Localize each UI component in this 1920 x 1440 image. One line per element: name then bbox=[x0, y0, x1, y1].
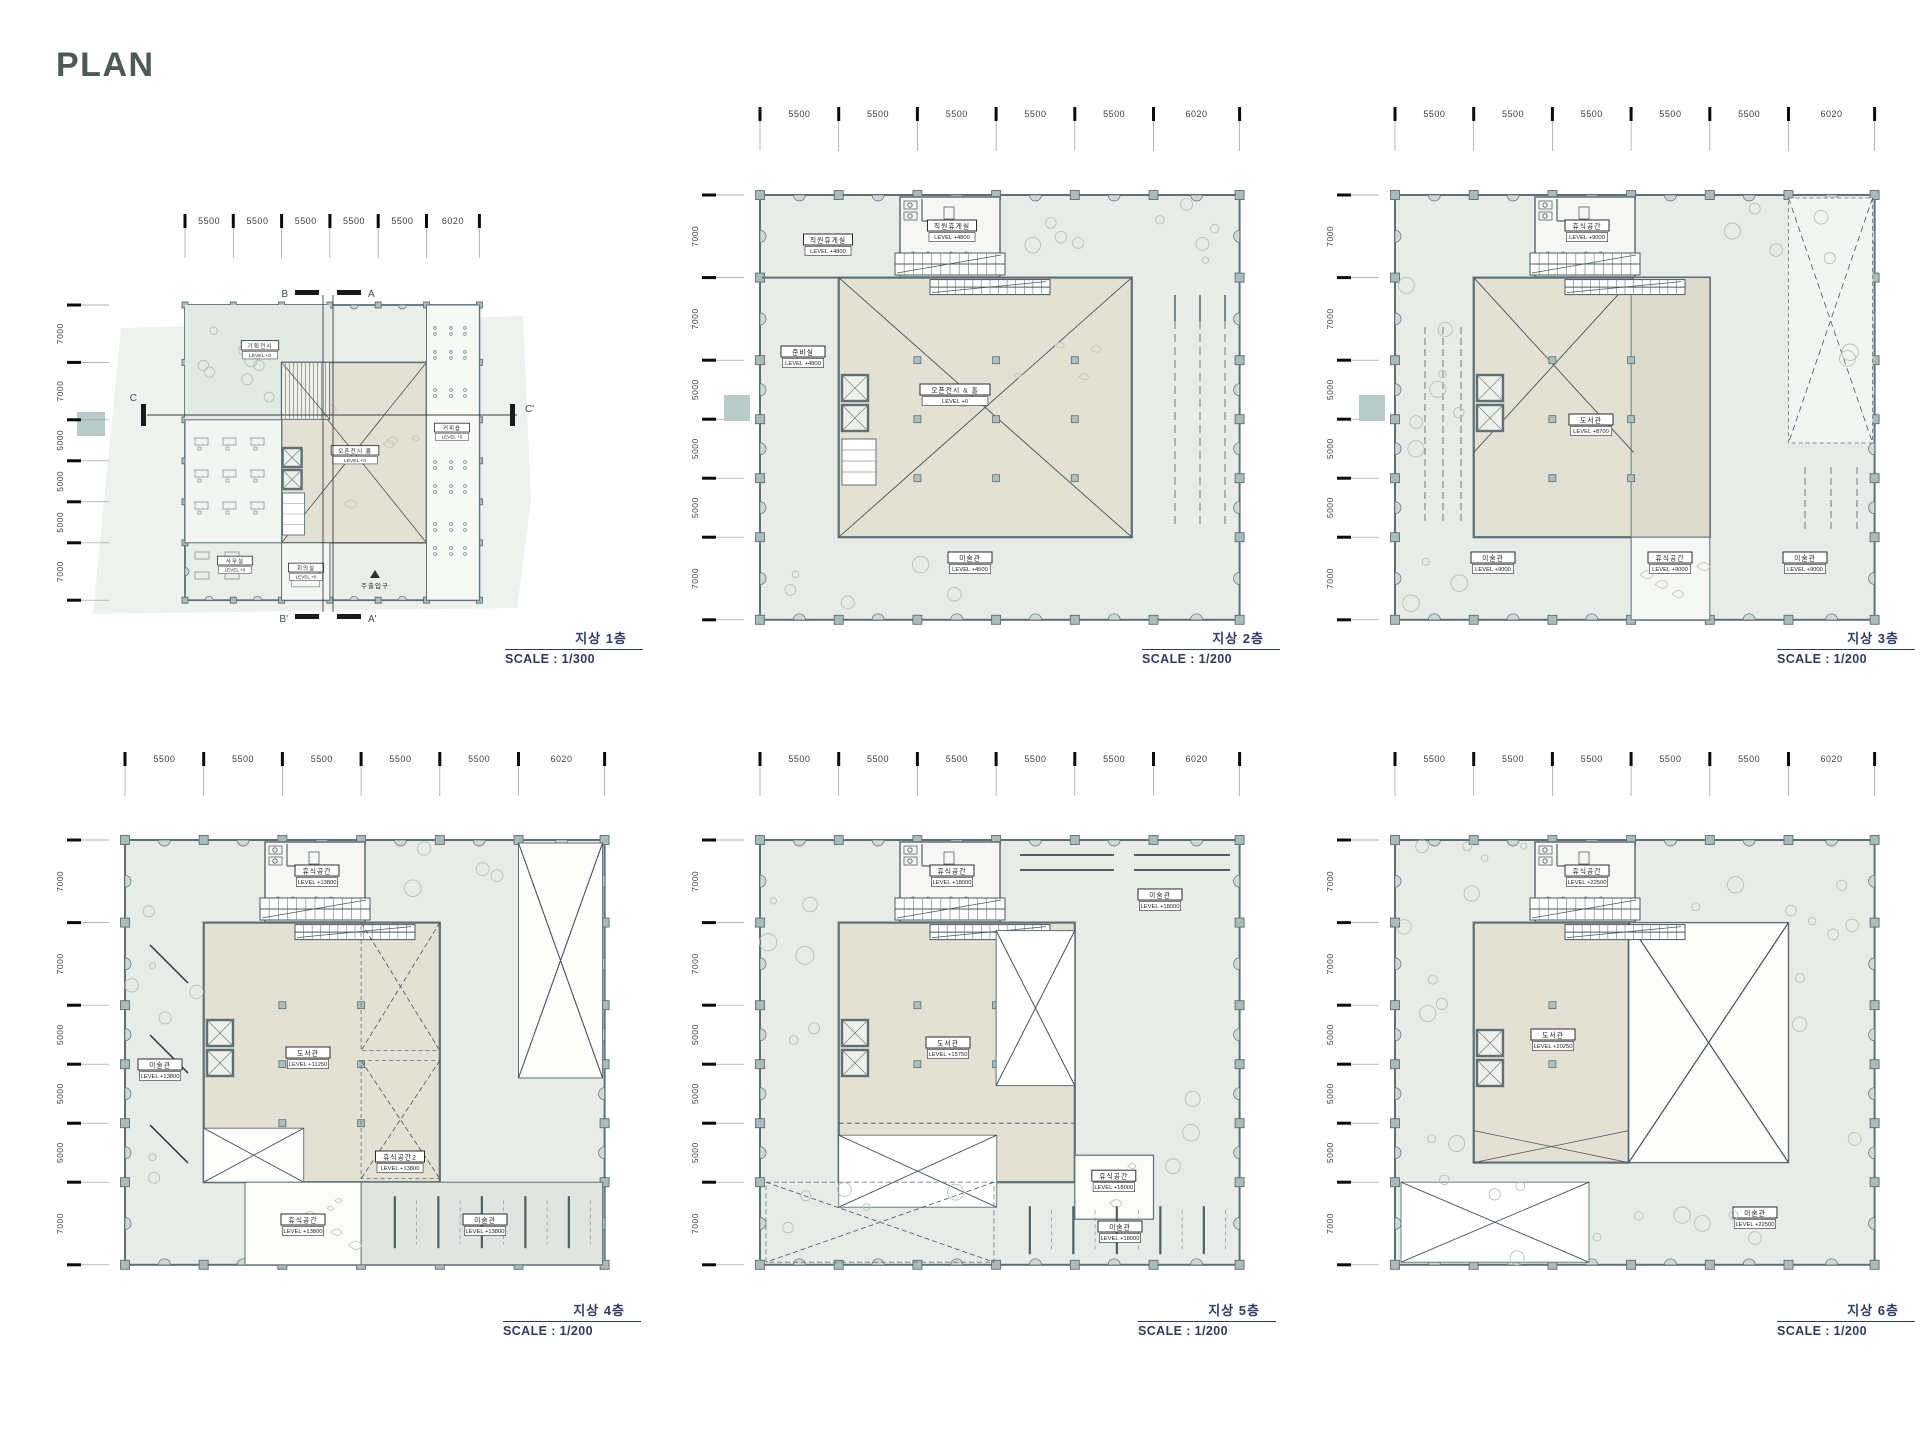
room-label: 커피숍LEVEL +0 bbox=[434, 423, 469, 440]
elevator-core bbox=[207, 1020, 233, 1046]
floor-plan-drawing-1f: 기획전시LEVEL +0오픈전시 홀LEVEL +0커피숍LEVEL +0사무실… bbox=[55, 200, 655, 670]
room-label: 휴식공간LEVEL +22500 bbox=[1565, 865, 1609, 887]
svg-text:직원휴게실: 직원휴게실 bbox=[934, 222, 970, 231]
svg-text:LEVEL +15750: LEVEL +15750 bbox=[929, 1052, 968, 1058]
svg-text:준비실: 준비실 bbox=[792, 348, 814, 357]
svg-text:오픈전시 & 홀: 오픈전시 & 홀 bbox=[931, 386, 979, 395]
svg-text:기획전시: 기획전시 bbox=[247, 342, 272, 350]
dimension-strip-top: 550055005500550055006020 bbox=[1394, 752, 1877, 796]
caption-scale-label: SCALE : 1/200 bbox=[1138, 1322, 1276, 1338]
room-label: 미술관LEVEL +22500 bbox=[1733, 1207, 1777, 1229]
svg-text:7000: 7000 bbox=[690, 1213, 700, 1234]
plan-caption: 지상 6층 SCALE : 1/200 bbox=[1777, 1300, 1915, 1338]
svg-text:5500: 5500 bbox=[295, 216, 317, 226]
svg-text:회의실: 회의실 bbox=[297, 564, 315, 572]
floor-plan-panel-2f: 5500550055005500550060207000700050005000… bbox=[690, 95, 1290, 675]
svg-text:7000: 7000 bbox=[55, 871, 65, 892]
svg-text:7000: 7000 bbox=[1325, 308, 1335, 329]
room-label: 준비실LEVEL +4800 bbox=[781, 346, 825, 368]
svg-text:5000: 5000 bbox=[1325, 1083, 1335, 1104]
svg-text:7000: 7000 bbox=[55, 1213, 65, 1234]
svg-text:5000: 5000 bbox=[55, 1024, 65, 1045]
caption-scale-label: SCALE : 1/200 bbox=[1142, 650, 1280, 666]
floor-plan-drawing-5f: 5500550055005500550060207000700050005000… bbox=[690, 740, 1290, 1320]
svg-text:C: C bbox=[130, 393, 137, 404]
room-label: 미술관LEVEL +18000 bbox=[1098, 1221, 1142, 1243]
dimension-strip-left: 700070005000500050007000 bbox=[55, 839, 109, 1267]
svg-text:6020: 6020 bbox=[1186, 109, 1208, 119]
stair bbox=[930, 280, 1050, 295]
room-label: 기획전시LEVEL +0 bbox=[241, 341, 278, 359]
svg-text:LEVEL +13800: LEVEL +13800 bbox=[284, 1229, 323, 1235]
room-label: 미술관LEVEL +18000 bbox=[1138, 889, 1182, 911]
svg-text:LEVEL +22500: LEVEL +22500 bbox=[1568, 880, 1607, 886]
svg-text:5500: 5500 bbox=[1423, 754, 1445, 764]
room-label: 휴식공간LEVEL +9000 bbox=[1565, 220, 1609, 242]
svg-text:LEVEL +0: LEVEL +0 bbox=[942, 399, 968, 405]
plan-caption: 지상 2층 SCALE : 1/200 bbox=[1142, 628, 1280, 666]
svg-text:7000: 7000 bbox=[690, 308, 700, 329]
room-label: 도서관LEVEL +20250 bbox=[1531, 1029, 1575, 1051]
dimension-strip-top: 550055005500550055006020 bbox=[759, 752, 1242, 796]
svg-text:LEVEL +4800: LEVEL +4800 bbox=[810, 249, 846, 255]
stair bbox=[295, 925, 415, 940]
floor-plan-panel-3f: 5500550055005500550060207000700050005000… bbox=[1325, 95, 1920, 675]
svg-text:5500: 5500 bbox=[468, 754, 490, 764]
svg-text:5000: 5000 bbox=[690, 1083, 700, 1104]
caption-floor-label: 지상 4층 bbox=[503, 1300, 641, 1322]
svg-text:5000: 5000 bbox=[690, 1024, 700, 1045]
stair bbox=[895, 253, 1005, 275]
caption-floor-label: 지상 6층 bbox=[1777, 1300, 1915, 1322]
svg-text:5500: 5500 bbox=[1581, 754, 1603, 764]
svg-text:7000: 7000 bbox=[690, 568, 700, 589]
svg-text:5000: 5000 bbox=[690, 438, 700, 459]
svg-text:미술관: 미술관 bbox=[474, 1216, 496, 1225]
room-label: 미술관LEVEL +9000 bbox=[1783, 552, 1827, 574]
stair bbox=[1530, 253, 1640, 275]
svg-text:도서관: 도서관 bbox=[1542, 1031, 1564, 1040]
caption-scale-label: SCALE : 1/200 bbox=[503, 1322, 641, 1338]
svg-text:LEVEL +22500: LEVEL +22500 bbox=[1736, 1222, 1775, 1228]
svg-text:7000: 7000 bbox=[55, 561, 65, 582]
svg-text:7000: 7000 bbox=[1325, 226, 1335, 247]
svg-text:LEVEL +20250: LEVEL +20250 bbox=[1534, 1044, 1573, 1050]
svg-text:LEVEL +13800: LEVEL +13800 bbox=[298, 880, 337, 886]
room-label: 휴식공간LEVEL +18000 bbox=[930, 865, 974, 887]
svg-text:도서관: 도서관 bbox=[937, 1039, 959, 1048]
svg-text:7000: 7000 bbox=[1325, 871, 1335, 892]
svg-text:도서관: 도서관 bbox=[297, 1049, 319, 1058]
svg-text:미술관: 미술관 bbox=[1794, 554, 1816, 563]
room-label: 직원휴게실LEVEL +4800 bbox=[804, 234, 853, 256]
svg-text:LEVEL +9000: LEVEL +9000 bbox=[1652, 567, 1688, 573]
svg-text:5500: 5500 bbox=[1502, 109, 1524, 119]
svg-text:휴식공간: 휴식공간 bbox=[937, 867, 966, 876]
svg-text:LEVEL +0: LEVEL +0 bbox=[442, 434, 463, 439]
svg-text:5500: 5500 bbox=[232, 754, 254, 764]
room-label: 직원휴게실LEVEL +4800 bbox=[928, 220, 977, 242]
floor-plan-drawing-6f: 5500550055005500550060207000700050005000… bbox=[1325, 740, 1920, 1320]
svg-text:LEVEL +18000: LEVEL +18000 bbox=[1094, 1185, 1133, 1191]
svg-text:LEVEL +0: LEVEL +0 bbox=[344, 458, 366, 464]
svg-text:LEVEL +4500: LEVEL +4500 bbox=[952, 567, 988, 573]
svg-text:미술관: 미술관 bbox=[1109, 1223, 1131, 1232]
room-label: 도서관LEVEL +15750 bbox=[926, 1037, 970, 1059]
svg-text:5000: 5000 bbox=[55, 430, 65, 451]
elevator-core bbox=[1477, 405, 1503, 431]
svg-text:6020: 6020 bbox=[1821, 754, 1843, 764]
svg-text:LEVEL +4800: LEVEL +4800 bbox=[934, 235, 970, 241]
svg-text:5000: 5000 bbox=[55, 1083, 65, 1104]
elevator-core bbox=[842, 375, 868, 401]
svg-text:A': A' bbox=[368, 614, 377, 625]
elevator-core bbox=[1477, 1030, 1503, 1056]
caption-floor-label: 지상 1층 bbox=[505, 628, 643, 650]
svg-text:휴식공간: 휴식공간 bbox=[302, 867, 331, 876]
room-label: 회의실LEVEL +0 bbox=[288, 563, 323, 580]
svg-text:LEVEL +18000: LEVEL +18000 bbox=[1101, 1236, 1140, 1242]
svg-text:5500: 5500 bbox=[1024, 109, 1046, 119]
svg-text:7000: 7000 bbox=[690, 953, 700, 974]
elevator-core bbox=[283, 470, 302, 489]
svg-text:5000: 5000 bbox=[1325, 379, 1335, 400]
svg-text:5500: 5500 bbox=[246, 216, 268, 226]
svg-text:LEVEL +11250: LEVEL +11250 bbox=[289, 1062, 328, 1068]
dimension-strip-top: 550055005500550055006020 bbox=[1394, 107, 1877, 151]
room-label: 오픈전시 & 홀LEVEL +0 bbox=[920, 384, 990, 406]
room-label: 도서관LEVEL +11250 bbox=[286, 1047, 330, 1069]
svg-text:LEVEL +9000: LEVEL +9000 bbox=[1569, 235, 1605, 241]
svg-text:5000: 5000 bbox=[690, 379, 700, 400]
caption-floor-label: 지상 5층 bbox=[1138, 1300, 1276, 1322]
svg-text:5500: 5500 bbox=[391, 216, 413, 226]
caption-scale-label: SCALE : 1/300 bbox=[505, 650, 643, 666]
svg-text:LEVEL +13800: LEVEL +13800 bbox=[381, 1166, 420, 1172]
svg-text:5000: 5000 bbox=[55, 512, 65, 533]
svg-text:5500: 5500 bbox=[1738, 754, 1760, 764]
svg-text:5500: 5500 bbox=[389, 754, 411, 764]
svg-text:A: A bbox=[368, 289, 375, 300]
floor-plan-drawing-3f: 5500550055005500550060207000700050005000… bbox=[1325, 95, 1920, 675]
svg-text:5500: 5500 bbox=[1659, 754, 1681, 764]
floor-plan-panel-1f: 기획전시LEVEL +0오픈전시 홀LEVEL +0커피숍LEVEL +0사무실… bbox=[55, 200, 655, 670]
stair bbox=[895, 898, 1005, 920]
svg-text:5000: 5000 bbox=[690, 497, 700, 518]
svg-text:5500: 5500 bbox=[946, 109, 968, 119]
svg-text:6020: 6020 bbox=[1186, 754, 1208, 764]
plan-caption: 지상 1층 SCALE : 1/300 bbox=[505, 628, 643, 666]
svg-text:6020: 6020 bbox=[551, 754, 573, 764]
stair bbox=[1565, 925, 1685, 940]
svg-text:7000: 7000 bbox=[55, 953, 65, 974]
caption-floor-label: 지상 3층 bbox=[1777, 628, 1915, 650]
svg-text:5000: 5000 bbox=[690, 1142, 700, 1163]
dimension-strip-left: 700070005000500050007000 bbox=[1325, 839, 1379, 1267]
svg-text:도서관: 도서관 bbox=[1580, 416, 1602, 425]
floor-plan-panel-4f: 5500550055005500550060207000700050005000… bbox=[55, 740, 655, 1360]
svg-text:미술관: 미술관 bbox=[1482, 554, 1504, 563]
floor-plan-panel-5f: 5500550055005500550060207000700050005000… bbox=[690, 740, 1290, 1360]
stair bbox=[1530, 898, 1640, 920]
svg-text:5500: 5500 bbox=[946, 754, 968, 764]
svg-text:5500: 5500 bbox=[311, 754, 333, 764]
svg-text:B': B' bbox=[279, 614, 288, 625]
svg-text:LEVEL +9000: LEVEL +9000 bbox=[1475, 567, 1511, 573]
room-label: 미술관LEVEL +4500 bbox=[948, 552, 992, 574]
svg-text:5000: 5000 bbox=[55, 471, 65, 492]
svg-text:미술관: 미술관 bbox=[959, 554, 981, 563]
room-label: 미술관LEVEL +13800 bbox=[138, 1059, 182, 1081]
svg-text:오픈전시 홀: 오픈전시 홀 bbox=[338, 447, 372, 455]
dimension-strip-left: 700070005000500050007000 bbox=[690, 839, 744, 1267]
svg-text:휴식공간: 휴식공간 bbox=[1099, 1172, 1128, 1181]
elevator-core bbox=[842, 405, 868, 431]
svg-text:LEVEL +0: LEVEL +0 bbox=[225, 567, 246, 572]
svg-text:7000: 7000 bbox=[690, 871, 700, 892]
dimension-strip-top: 550055005500550055006020 bbox=[184, 214, 481, 258]
svg-text:5500: 5500 bbox=[1738, 109, 1760, 119]
plan-caption: 지상 4층 SCALE : 1/200 bbox=[503, 1300, 641, 1338]
svg-text:5500: 5500 bbox=[788, 754, 810, 764]
dimension-strip-top: 550055005500550055006020 bbox=[759, 107, 1242, 151]
floor-plan-panel-6f: 5500550055005500550060207000700050005000… bbox=[1325, 740, 1920, 1360]
svg-text:LEVEL +13800: LEVEL +13800 bbox=[141, 1074, 180, 1080]
room-label: 사무실LEVEL +0 bbox=[217, 556, 252, 573]
svg-text:LEVEL +13800: LEVEL +13800 bbox=[466, 1229, 505, 1235]
room-label: 오픈전시 홀LEVEL +0 bbox=[331, 446, 379, 464]
svg-text:LEVEL +8700: LEVEL +8700 bbox=[1573, 429, 1609, 435]
caption-scale-label: SCALE : 1/200 bbox=[1777, 650, 1915, 666]
stair bbox=[1565, 280, 1685, 295]
svg-text:직원휴게실: 직원휴게실 bbox=[810, 236, 846, 245]
svg-text:5500: 5500 bbox=[1103, 109, 1125, 119]
svg-text:5500: 5500 bbox=[1502, 754, 1524, 764]
room-label: 휴식공간LEVEL +18000 bbox=[1092, 1170, 1136, 1192]
plan-caption: 지상 3층 SCALE : 1/200 bbox=[1777, 628, 1915, 666]
elevator-core bbox=[842, 1050, 868, 1076]
dimension-strip-top: 550055005500550055006020 bbox=[124, 752, 607, 796]
stair bbox=[260, 898, 370, 920]
svg-text:휴식공간: 휴식공간 bbox=[1572, 222, 1601, 231]
svg-text:미술관: 미술관 bbox=[1149, 891, 1171, 900]
room-label: 휴식공간LEVEL +9000 bbox=[1648, 552, 1692, 574]
svg-text:5500: 5500 bbox=[867, 754, 889, 764]
svg-text:5500: 5500 bbox=[1103, 754, 1125, 764]
svg-text:휴식공간: 휴식공간 bbox=[1572, 867, 1601, 876]
room-label: 도서관LEVEL +8700 bbox=[1569, 414, 1613, 436]
svg-text:미술관: 미술관 bbox=[1744, 1209, 1766, 1218]
svg-text:LEVEL +18000: LEVEL +18000 bbox=[933, 880, 972, 886]
elevator-core bbox=[1477, 375, 1503, 401]
elevator-core bbox=[207, 1050, 233, 1076]
svg-text:B: B bbox=[281, 289, 288, 300]
svg-text:6020: 6020 bbox=[1821, 109, 1843, 119]
svg-text:5500: 5500 bbox=[198, 216, 220, 226]
caption-floor-label: 지상 2층 bbox=[1142, 628, 1280, 650]
svg-text:7000: 7000 bbox=[690, 226, 700, 247]
svg-text:5500: 5500 bbox=[788, 109, 810, 119]
svg-text:5500: 5500 bbox=[867, 109, 889, 119]
svg-text:LEVEL +4800: LEVEL +4800 bbox=[785, 361, 821, 367]
svg-text:LEVEL +0: LEVEL +0 bbox=[296, 574, 317, 579]
svg-text:커피숍: 커피숍 bbox=[443, 424, 461, 432]
plan-caption: 지상 5층 SCALE : 1/200 bbox=[1138, 1300, 1276, 1338]
svg-text:사무실: 사무실 bbox=[226, 557, 244, 565]
svg-text:7000: 7000 bbox=[55, 323, 65, 344]
elevator-core bbox=[283, 448, 302, 467]
svg-text:5000: 5000 bbox=[1325, 1024, 1335, 1045]
svg-text:휴식공간2: 휴식공간2 bbox=[383, 1153, 417, 1162]
svg-text:7000: 7000 bbox=[1325, 568, 1335, 589]
room-label: 휴식공간LEVEL +13800 bbox=[295, 865, 339, 887]
floor-plan-drawing-2f: 5500550055005500550060207000700050005000… bbox=[690, 95, 1290, 675]
stair-hatch bbox=[282, 362, 330, 419]
svg-text:LEVEL +9000: LEVEL +9000 bbox=[1787, 567, 1823, 573]
svg-text:휴식공간: 휴식공간 bbox=[288, 1216, 317, 1225]
floor-plan-drawing-4f: 5500550055005500550060207000700050005000… bbox=[55, 740, 655, 1320]
svg-text:5500: 5500 bbox=[1659, 109, 1681, 119]
svg-text:5500: 5500 bbox=[1581, 109, 1603, 119]
svg-text:6020: 6020 bbox=[442, 216, 464, 226]
svg-text:5000: 5000 bbox=[55, 1142, 65, 1163]
svg-text:LEVEL +0: LEVEL +0 bbox=[249, 353, 271, 359]
svg-text:7000: 7000 bbox=[1325, 953, 1335, 974]
svg-text:7000: 7000 bbox=[55, 381, 65, 402]
svg-text:5500: 5500 bbox=[343, 216, 365, 226]
svg-text:미술관: 미술관 bbox=[149, 1061, 171, 1070]
svg-text:5500: 5500 bbox=[1423, 109, 1445, 119]
room-label: 미술관LEVEL +9000 bbox=[1471, 552, 1515, 574]
svg-text:LEVEL +18000: LEVEL +18000 bbox=[1141, 904, 1180, 910]
svg-text:5500: 5500 bbox=[153, 754, 175, 764]
svg-text:5000: 5000 bbox=[1325, 497, 1335, 518]
svg-text:5500: 5500 bbox=[1024, 754, 1046, 764]
room-label: 미술관LEVEL +13800 bbox=[463, 1214, 507, 1236]
plan-sheet: PLAN 기획전시LEVEL +0오픈전시 홀LEVEL +0커피숍LEVEL … bbox=[0, 0, 1920, 1440]
sheet-title: PLAN bbox=[56, 46, 155, 85]
svg-text:7000: 7000 bbox=[1325, 1213, 1335, 1234]
svg-text:주출입구: 주출입구 bbox=[361, 581, 389, 590]
elevator-core bbox=[842, 1020, 868, 1046]
caption-scale-label: SCALE : 1/200 bbox=[1777, 1322, 1915, 1338]
elevator-core bbox=[1477, 1060, 1503, 1086]
svg-text:5000: 5000 bbox=[1325, 1142, 1335, 1163]
svg-text:5000: 5000 bbox=[1325, 438, 1335, 459]
room-label: 휴식공간2LEVEL +13800 bbox=[376, 1151, 425, 1173]
svg-text:휴식공간: 휴식공간 bbox=[1655, 554, 1684, 563]
svg-text:C': C' bbox=[525, 404, 534, 415]
room-label: 휴식공간LEVEL +13800 bbox=[281, 1214, 325, 1236]
